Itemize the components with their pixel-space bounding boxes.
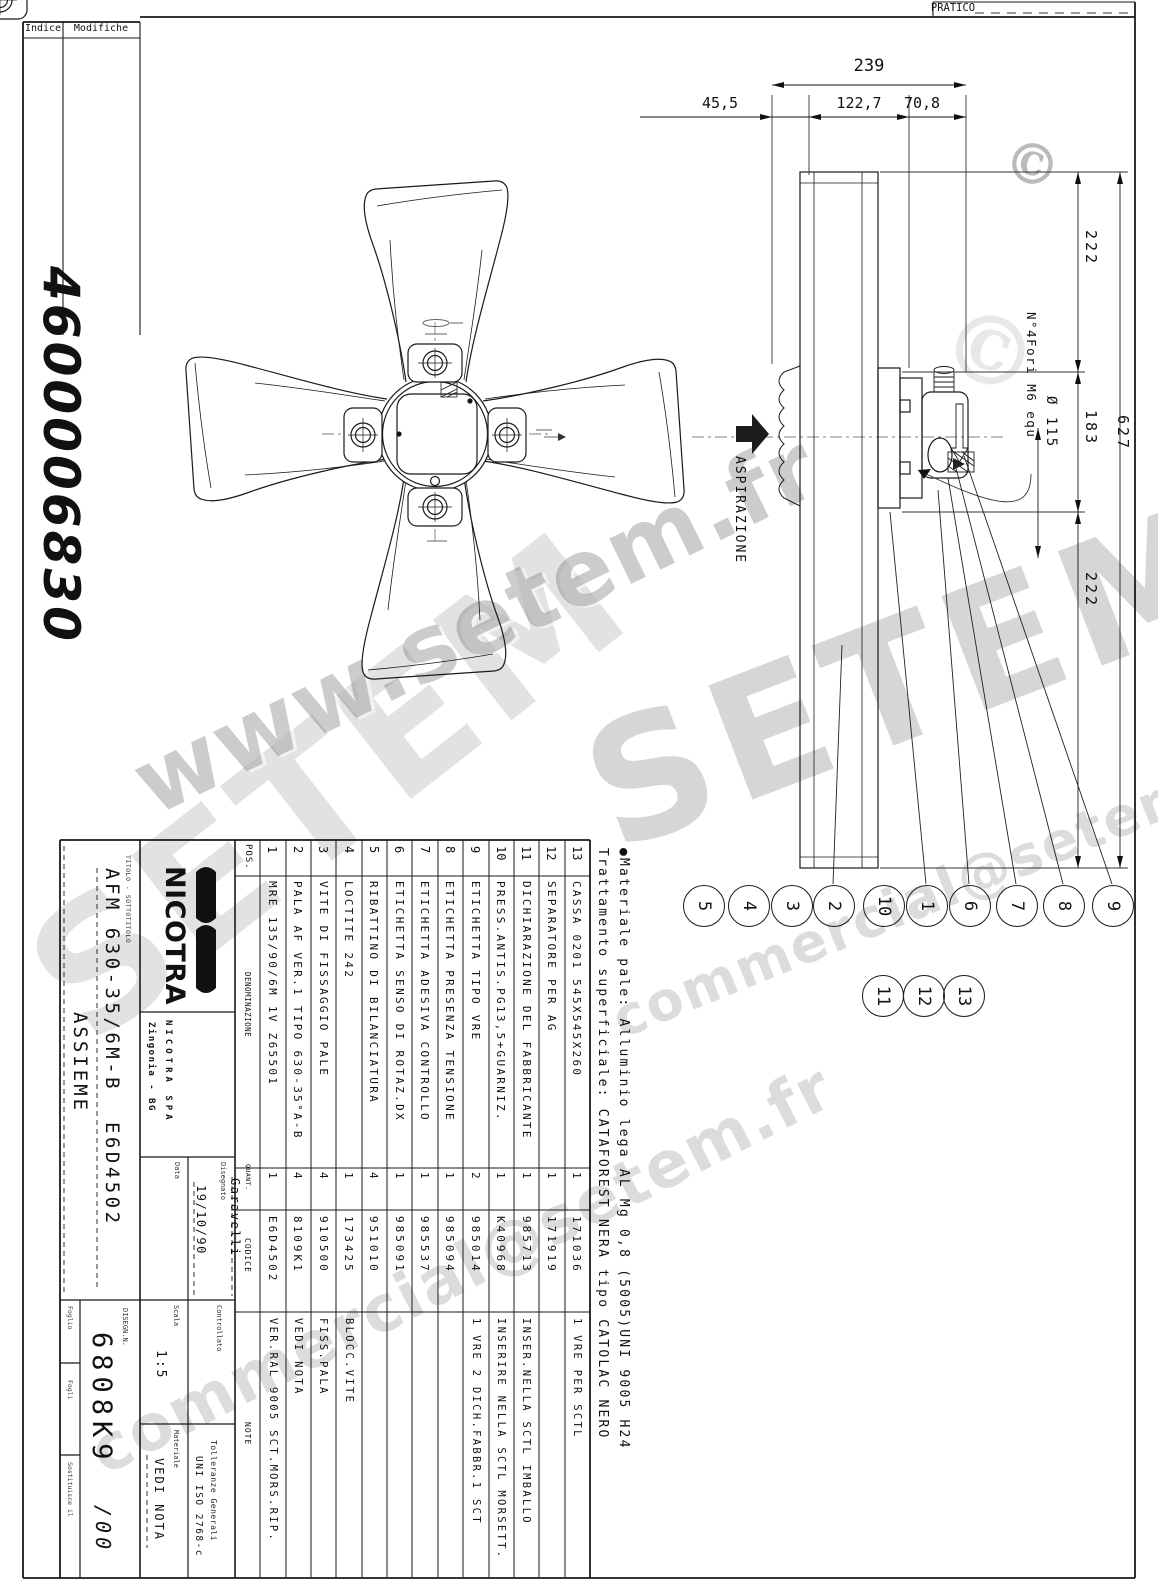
company-location: Zingonia - BG (146, 1022, 155, 1112)
controllato-label: Controllato (215, 1305, 222, 1351)
company-name: NICOTRA SPA (163, 1020, 172, 1124)
airflow-arrow-icon (736, 414, 769, 454)
sheet-frame (23, 2, 1135, 1578)
data-value: 19/10/90 (195, 1185, 207, 1255)
drawing-geometry (0, 0, 1158, 1586)
drawing-subtitle: ASSIEME (70, 1012, 89, 1113)
dim-right-183: 183 (1083, 410, 1098, 446)
material-note-line1: ●Materiale pale: Alluminio lega AL Mg 0,… (617, 848, 630, 1450)
sostituisce-label: Sostituisce il (67, 1462, 74, 1517)
dim-bolt-circle: Ø 115 (1044, 396, 1058, 448)
dim-70-8: 70,8 (904, 96, 940, 111)
dims-right (880, 172, 1128, 868)
fogli-label: Fogli (67, 1380, 74, 1400)
materiale-label: Materiale (172, 1430, 179, 1468)
parts-table-lines (235, 840, 590, 1578)
aspirazione-label: ASPIRAZIONE (733, 456, 746, 564)
titolo-label: TITOLO - SOTTOTITOLO (125, 855, 132, 943)
revision-number: /00 (93, 1505, 113, 1553)
disegnato-label: Disegnato (219, 1162, 226, 1200)
disegno-label: DISEGN.N. (121, 1308, 128, 1346)
holes-note: N°4Fori M6 equ (1025, 312, 1038, 438)
balloon-leaders (833, 456, 1112, 884)
part-number: 4600006830 (36, 266, 86, 644)
dim-right-222-bottom: 222 (1083, 572, 1098, 608)
dim-239: 239 (854, 58, 885, 75)
dim-right-222-top: 222 (1083, 230, 1098, 266)
data-label: Data (173, 1162, 180, 1179)
drawing-sheet: SETEM www.setem.fr SETEM commercial@sete… (0, 0, 1158, 1586)
dim-45-5: 45,5 (702, 96, 738, 111)
tolleranze-value: UNI ISO 2768-c (194, 1456, 204, 1557)
modifiche-header: Modifiche (74, 24, 128, 34)
pratico-label: PRATICO (931, 3, 975, 14)
disegnato-value: Garavelli (229, 1178, 241, 1257)
foglio-label: Foglio (67, 1306, 74, 1329)
scala-label: Scala (172, 1305, 179, 1326)
title-block-lines (60, 840, 590, 1578)
dims-top (640, 82, 966, 372)
material-note-line2: Trattamento superficiale: CATAFOREST NER… (596, 848, 609, 1440)
disegno-number: 6808K9 (88, 1332, 115, 1466)
front-view (0, 0, 684, 679)
dim-right-627: 627 (1115, 415, 1130, 451)
indice-header: Indice (25, 24, 61, 34)
tolleranze-label: Tolleranze Generali (209, 1440, 217, 1541)
dim-122-7: 122,7 (836, 96, 881, 111)
drawing-title: AFM 630-35/6M-B E6D4502 (102, 868, 121, 1227)
scala-value: 1:5 (154, 1350, 167, 1379)
materiale-value: VEDI NOTA (153, 1458, 165, 1541)
nicotra-logo: NICOTRA (161, 866, 188, 1005)
